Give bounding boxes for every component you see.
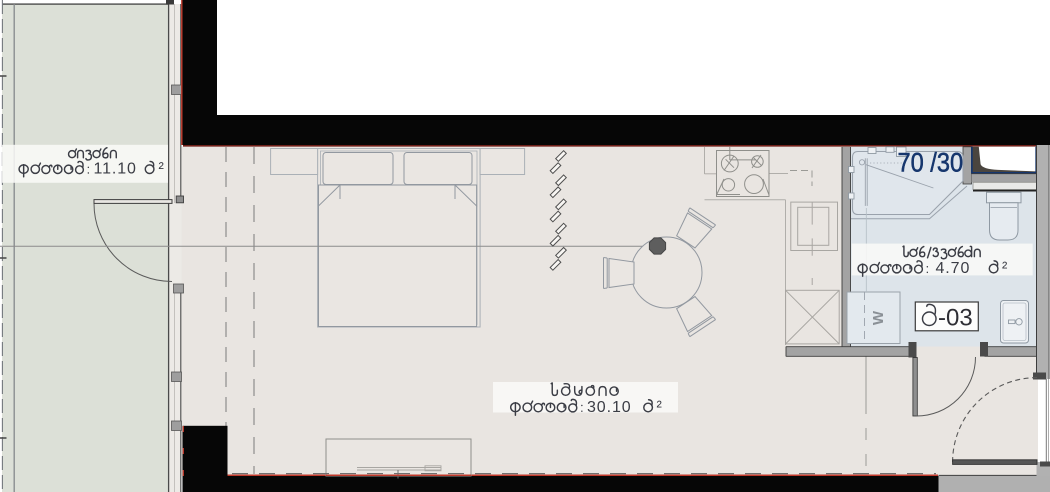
svg-text:4.70: 4.70 [936, 260, 971, 277]
svg-text:70 /30: 70 /30 [898, 148, 964, 178]
svg-text:11.10: 11.10 [94, 161, 137, 178]
svg-text:30.10: 30.10 [587, 399, 632, 416]
svg-text:W: W [870, 310, 887, 325]
svg-text:-03: -03 [938, 305, 973, 332]
svg-text:²: ² [1002, 260, 1008, 277]
svg-text:²: ² [657, 399, 663, 416]
svg-text:²: ² [159, 161, 165, 178]
